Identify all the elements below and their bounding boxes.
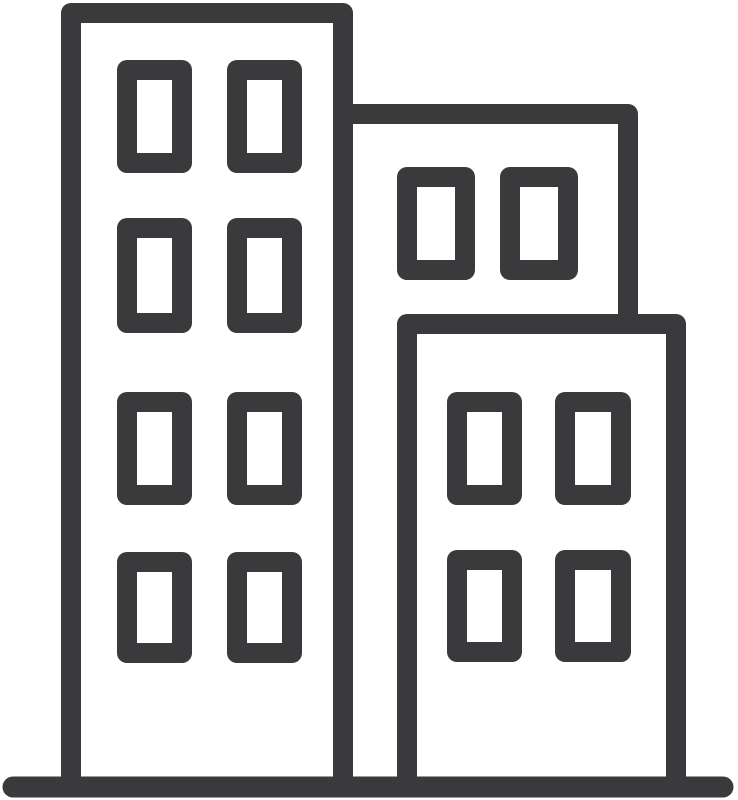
building-right-tower-window-2 — [565, 402, 621, 495]
building-left-tower-window-5 — [127, 402, 182, 495]
city-buildings-icon — [0, 0, 738, 800]
building-right-tower-window-4 — [565, 560, 621, 652]
building-left-tower-outline — [71, 13, 343, 790]
building-left-tower-window-1 — [127, 70, 182, 163]
building-middle-tower-outline — [343, 114, 628, 330]
building-right-tower-window-3 — [457, 560, 512, 652]
building-left-tower-window-6 — [237, 402, 292, 495]
building-middle-tower-window-2 — [510, 177, 568, 270]
city-buildings-illustration — [0, 0, 738, 800]
building-left-tower-window-8 — [237, 562, 292, 653]
building-right-tower-window-1 — [457, 402, 512, 495]
building-right-tower-outline — [407, 324, 676, 790]
building-middle-tower-window-1 — [407, 177, 465, 270]
building-left-tower-window-3 — [127, 228, 182, 323]
building-left-tower-window-7 — [127, 562, 182, 653]
building-left-tower-window-4 — [237, 228, 292, 323]
building-left-tower-window-2 — [237, 70, 292, 163]
